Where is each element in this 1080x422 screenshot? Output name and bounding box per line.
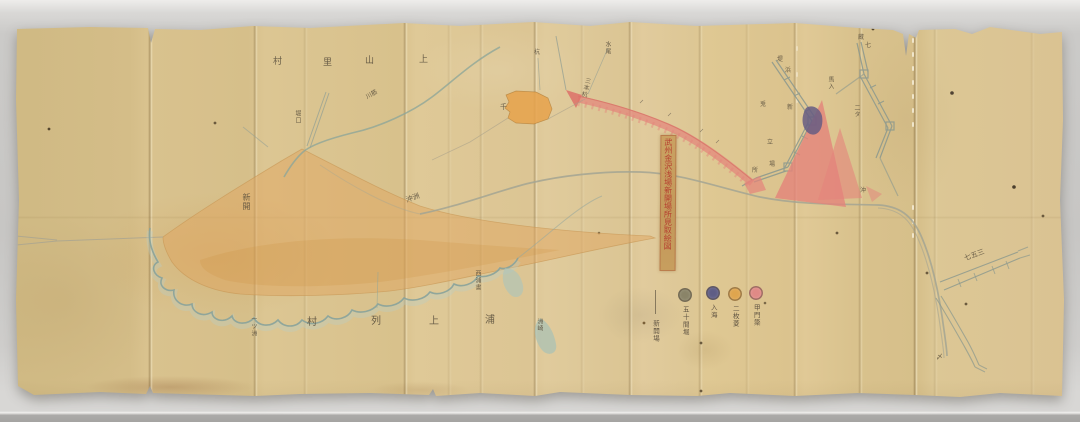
- map-label: 堀口: [294, 110, 300, 124]
- map-sheet-shadow: 武州金沢浅場新開場所見取絵図 新開場五十間堀入海二枚菱甲門簗 村里山上一ツ洲村列…: [0, 0, 1080, 422]
- shore-line: [518, 196, 602, 258]
- photo-of-antique-map: 武州金沢浅場新開場所見取絵図 新開場五十間堀入海二枚菱甲門簗 村里山上一ツ洲村列…: [0, 0, 1080, 422]
- map-label: 上: [429, 317, 439, 327]
- title-slip: 武州金沢浅場新開場所見取絵図: [660, 135, 677, 271]
- map-label: 西浦書: [474, 270, 480, 291]
- river: [284, 47, 500, 177]
- survey-line: [556, 36, 566, 90]
- map-label: 二タ: [853, 104, 859, 118]
- legend-label: 新開場: [652, 320, 659, 343]
- ditch-line: [243, 127, 268, 147]
- legend-color-swatch: [728, 287, 742, 301]
- map-label: 立: [767, 140, 773, 146]
- legend: 新開場五十間堀入海二枚菱甲門簗: [648, 288, 783, 358]
- map-label: 村: [273, 58, 282, 67]
- horizontal-crease: [16, 216, 1064, 219]
- road-line: [320, 165, 420, 214]
- map-label: 洲崎: [536, 318, 542, 332]
- map-label: 一ツ洲: [250, 316, 256, 337]
- paper-stains: [0, 0, 1080, 422]
- fold-crease: [858, 20, 863, 400]
- fold-crease: [303, 20, 308, 400]
- stitch-mark: [796, 72, 798, 77]
- embankment-wash-small: [818, 128, 862, 200]
- map-label: 沖: [860, 188, 866, 194]
- legend-item: 甲門簗: [749, 286, 763, 327]
- legend-label: 二枚菱: [732, 305, 739, 328]
- fold-crease: [403, 20, 408, 400]
- map-label: 兎: [760, 102, 766, 108]
- title-slip-text: 武州金沢浅場新開場所見取絵図: [661, 138, 675, 250]
- fold-crease: [933, 20, 938, 400]
- tick-marks: [640, 100, 719, 143]
- embankment-wash-bit: [744, 176, 766, 194]
- ink-specks: [0, 0, 2, 2]
- stitch-mark: [912, 66, 914, 71]
- orange-patch: [505, 91, 552, 124]
- map-label: 七: [865, 43, 871, 49]
- map-sheet: 武州金沢浅場新開場所見取絵図 新開場五十間堀入海二枚菱甲門簗 村里山上一ツ洲村列…: [0, 0, 1080, 422]
- main-canal-inner: [878, 208, 944, 358]
- stitch-mark: [912, 233, 914, 238]
- fold-crease: [793, 20, 798, 400]
- map-label: 沖洲: [405, 193, 421, 204]
- connector-lines: [432, 99, 585, 160]
- map-label: 山: [365, 57, 374, 66]
- embankment-wash-large: [775, 100, 846, 207]
- map-label: 新開: [242, 193, 250, 211]
- map-label: 浜: [785, 68, 791, 74]
- fold-crease: [148, 20, 153, 400]
- legend-label: 甲門簗: [753, 304, 760, 327]
- fold-crease: [628, 20, 633, 400]
- stake-lines: [538, 48, 608, 94]
- map-label: 里: [323, 59, 332, 68]
- sheet-seam: [913, 20, 918, 400]
- stitch-mark: [912, 94, 914, 99]
- fold-crease: [253, 20, 258, 400]
- stitch-mark: [912, 38, 914, 43]
- channel-double-line: [940, 252, 1020, 290]
- sluice-patch: [803, 106, 823, 134]
- map-label: 千: [500, 104, 507, 111]
- fold-crease: [533, 20, 538, 400]
- legend-item: 入海: [706, 286, 720, 319]
- map-label: 馬入: [827, 76, 833, 90]
- map-label: 七五三: [963, 249, 985, 263]
- map-label: 上: [419, 56, 428, 65]
- map-artwork: [0, 0, 1080, 422]
- stitch-mark: [912, 80, 914, 85]
- map-label: 村: [307, 318, 317, 328]
- map-label: 蔵: [858, 35, 864, 41]
- map-label: 川筋: [365, 89, 378, 100]
- fold-crease: [447, 20, 452, 400]
- coastline: [149, 228, 518, 326]
- inlet-patch: [503, 268, 523, 297]
- legend-line-swatch: [655, 290, 656, 314]
- map-label: 堤: [777, 57, 783, 63]
- legend-color-swatch: [749, 286, 763, 300]
- embankment-structures: [742, 42, 898, 196]
- map-label: 杭: [534, 50, 540, 56]
- stitch-mark: [912, 122, 914, 127]
- stitch-mark: [912, 219, 914, 224]
- legend-label: 入海: [710, 304, 717, 319]
- map-label: 場: [769, 162, 775, 168]
- new-field-wash: [163, 149, 655, 296]
- map-label: 浦: [485, 316, 495, 326]
- creek-line: [377, 272, 378, 308]
- legend-item: 五十間堀: [678, 288, 692, 336]
- map-label: 所: [752, 168, 758, 174]
- canal-double-line: [307, 92, 329, 148]
- fold-crease: [1030, 20, 1035, 400]
- fold-crease: [479, 20, 484, 400]
- map-label: 新: [787, 105, 793, 111]
- stitch-mark: [912, 205, 914, 210]
- legend-color-swatch: [706, 286, 720, 300]
- legend-item: 新開場: [652, 290, 659, 343]
- boundary-line: [16, 236, 163, 245]
- map-label: 〆: [936, 354, 943, 361]
- stitch-mark: [912, 52, 914, 57]
- shore-water-tint: [149, 231, 518, 329]
- embankment-wash-bit: [866, 186, 882, 202]
- map-label: 三本杭: [580, 77, 591, 99]
- new-field-wash-core: [200, 238, 560, 286]
- map-label: 水尾: [604, 41, 610, 55]
- legend-label: 五十間堀: [682, 306, 689, 336]
- channel-end: [975, 365, 987, 372]
- legend-item: 二枚菱: [728, 287, 742, 328]
- map-label: 列: [371, 317, 381, 327]
- stitch-mark: [796, 46, 798, 51]
- legend-color-swatch: [678, 288, 692, 302]
- stitch-mark: [912, 108, 914, 113]
- stitch-mark: [796, 98, 798, 103]
